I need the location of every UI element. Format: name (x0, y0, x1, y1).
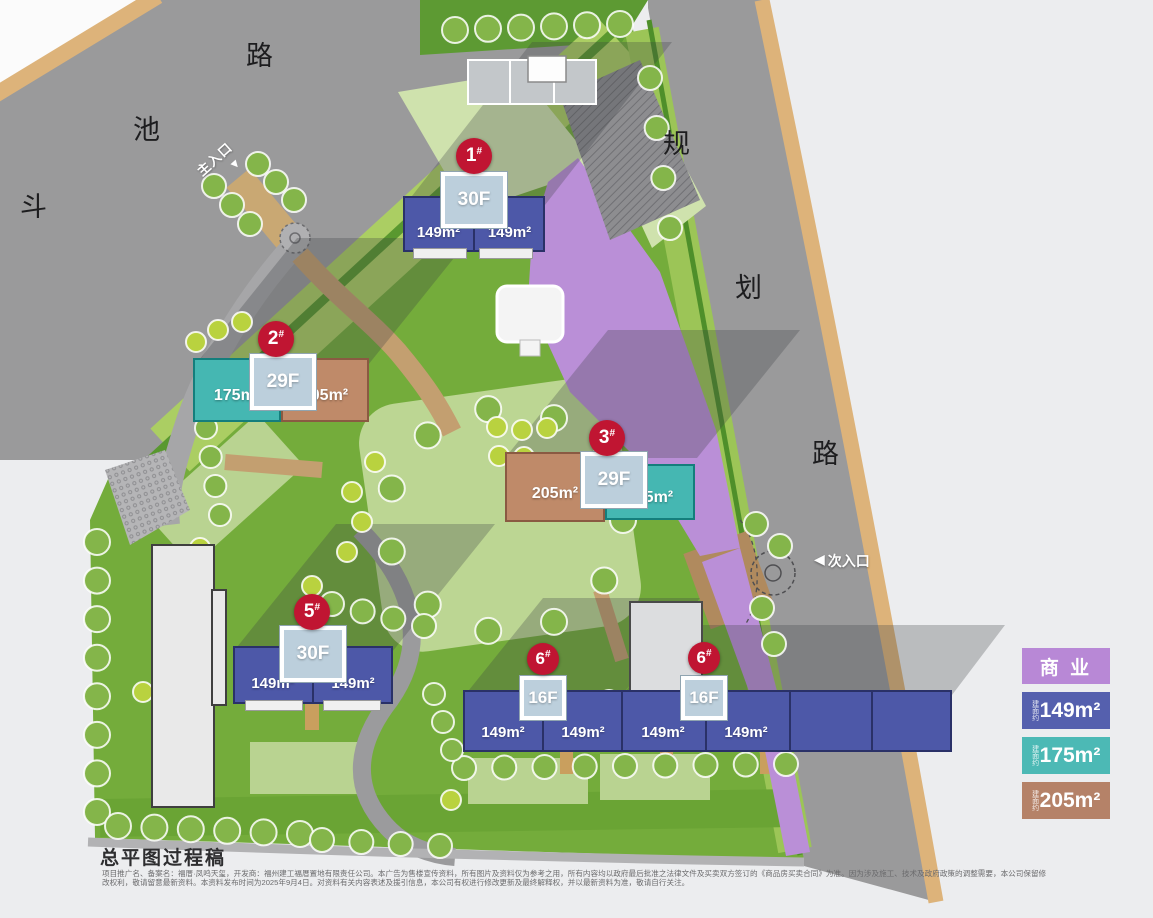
tree-icon (287, 821, 313, 847)
tree-icon (141, 815, 167, 841)
tree-icon (537, 418, 557, 438)
building-6e-badge: 6# (688, 642, 720, 674)
disclaimer-text: 项目推广名、备案名：福厝·凤鸣天玺，开发商：福州建工福厝置地有限责任公司。本广告… (102, 870, 1047, 887)
building-6-east: 149m² 149m² 16F 6# (621, 690, 952, 752)
tree-icon (492, 756, 516, 780)
tree-icon (432, 711, 454, 733)
unit-area-label: 149m² (561, 724, 604, 741)
building-6w-badge: 6# (527, 643, 559, 675)
tree-icon (768, 534, 792, 558)
tree-icon (214, 818, 240, 844)
unit-area-label: 149m² (641, 724, 684, 741)
unit-area-label: 149m² (724, 724, 767, 741)
building-6e-slab (621, 690, 952, 752)
tree-icon (133, 682, 153, 702)
tree-icon (533, 755, 557, 779)
tree-icon (423, 683, 445, 705)
tree-icon (220, 193, 244, 217)
badge-number: 1 (466, 145, 477, 167)
tree-icon (381, 607, 405, 631)
secondary-entrance-text: 次入口 (828, 551, 870, 571)
tree-icon (412, 614, 436, 638)
building-1-balcony (479, 248, 533, 259)
building-3: 205m² 175m² 29F 3# (505, 450, 695, 522)
building-1: 149m² 149m² 30F 1# (403, 196, 545, 252)
building-1-balcony (413, 248, 467, 259)
tree-icon (264, 170, 288, 194)
tree-icon (208, 320, 228, 340)
tree-icon (415, 422, 441, 448)
tree-icon (84, 529, 110, 555)
tree-icon (84, 760, 110, 786)
tree-icon (389, 832, 413, 856)
badge-number: 6 (696, 648, 705, 668)
unit-area-label: 205m² (532, 485, 578, 503)
building-5-badge: 5# (294, 594, 330, 630)
building-6e-divider (789, 690, 791, 752)
road-label-gui: 规 (663, 122, 690, 161)
site-plan: 斗 池 路 规 划 路 主入口 ▼ ◀次入口 149m² 149m² 30F 1… (0, 0, 1153, 918)
road-label-hua: 划 (735, 266, 762, 305)
badge-hash: # (279, 329, 285, 340)
badge-number: 6 (535, 649, 544, 669)
tree-icon (428, 834, 452, 858)
tree-icon (487, 417, 507, 437)
building-6-west: 149m² 149m² 16F 6# (463, 690, 623, 752)
tree-icon (441, 739, 463, 761)
page-title: 总平图过程稿 (100, 843, 226, 870)
building-3-badge: 3# (589, 420, 625, 456)
legend: 商 业 建面约 149m² 建面约 175m² 建面约 205m² (1022, 648, 1110, 819)
tree-icon (209, 504, 231, 526)
secondary-entrance-label: ◀次入口 (814, 551, 870, 571)
road-label-dou: 斗 (20, 185, 47, 224)
badge-hash: # (706, 648, 712, 659)
tree-icon (178, 816, 204, 842)
legend-area-value: 149m² (1040, 699, 1101, 723)
tree-icon (200, 446, 222, 468)
tree-icon (613, 754, 637, 778)
legend-area-prefix: 建面约 (1032, 745, 1039, 766)
tree-icon (638, 66, 662, 90)
tree-icon (282, 188, 306, 212)
tree-icon (591, 568, 617, 594)
tree-icon (84, 645, 110, 671)
tree-icon (204, 475, 226, 497)
building-2: 175m² 205m² 29F 2# (193, 358, 369, 422)
tree-icon (574, 12, 600, 38)
tree-icon (310, 828, 334, 852)
tree-icon (251, 819, 277, 845)
tree-icon (365, 452, 385, 472)
badge-hash: # (315, 602, 321, 613)
badge-number: 3 (599, 427, 610, 449)
building-5-floors: 30F (280, 626, 346, 682)
legend-area-value: 205m² (1040, 789, 1101, 813)
tree-icon (653, 754, 677, 778)
building-6e-floors: 16F (681, 676, 727, 720)
tree-icon (441, 790, 461, 810)
tree-icon (349, 830, 373, 854)
legend-commercial: 商 业 (1022, 648, 1110, 684)
tree-icon (774, 752, 798, 776)
tree-icon (379, 475, 405, 501)
tree-icon (337, 542, 357, 562)
tree-icon (475, 618, 501, 644)
building-5-balcony (323, 700, 381, 711)
tree-icon (541, 609, 567, 635)
building-1-badge: 1# (456, 138, 492, 174)
tree-icon (512, 420, 532, 440)
tree-icon (442, 17, 468, 43)
building-3-floors: 29F (581, 452, 647, 508)
road-label-chi: 池 (133, 108, 160, 147)
legend-area-prefix: 建面约 (1032, 790, 1039, 811)
tree-icon (744, 512, 768, 536)
building-6e-divider (871, 690, 873, 752)
tree-icon (508, 15, 534, 41)
secondary-entrance-arrow-icon: ◀ (814, 551, 825, 571)
building-5: 149m² 149m² 30F 5# (233, 646, 393, 704)
building-2-floors: 29F (250, 354, 316, 410)
tree-icon (84, 722, 110, 748)
road-label-lu-right: 路 (812, 432, 839, 471)
tree-icon (475, 16, 501, 42)
tree-icon (351, 599, 375, 623)
tree-icon (186, 332, 206, 352)
legend-area-value: 175m² (1040, 744, 1101, 768)
legend-area-175: 建面约 175m² (1022, 737, 1110, 774)
tree-icon (694, 753, 718, 777)
badge-number: 5 (304, 601, 315, 623)
tree-icon (762, 632, 786, 656)
unit-area-label: 149m² (481, 724, 524, 741)
building-1-floors: 30F (441, 172, 507, 228)
tree-icon (84, 683, 110, 709)
legend-area-149: 建面约 149m² (1022, 692, 1110, 729)
legend-area-prefix: 建面约 (1032, 700, 1039, 721)
badge-hash: # (477, 146, 483, 157)
tree-icon (651, 166, 675, 190)
tree-icon (232, 312, 252, 332)
tree-icon (541, 13, 567, 39)
tree-icon (379, 539, 405, 565)
building-6w-floors: 16F (520, 676, 566, 720)
tree-icon (750, 596, 774, 620)
tree-icon (246, 152, 270, 176)
building-2-badge: 2# (258, 321, 294, 357)
tree-icon (84, 568, 110, 594)
badge-hash: # (545, 649, 551, 660)
tree-icon (607, 11, 633, 37)
road-label-lu-left: 路 (246, 34, 273, 73)
badge-number: 2 (268, 328, 279, 350)
tree-icon (302, 576, 322, 596)
tree-icon (342, 482, 362, 502)
tree-icon (734, 753, 758, 777)
tree-icon (238, 212, 262, 236)
tree-icon (105, 813, 131, 839)
building-5-balcony (245, 700, 303, 711)
tree-icon (84, 606, 110, 632)
legend-area-205: 建面约 205m² (1022, 782, 1110, 819)
tree-icon (352, 512, 372, 532)
badge-hash: # (610, 428, 616, 439)
tree-icon (573, 755, 597, 779)
tree-icon (658, 216, 682, 240)
